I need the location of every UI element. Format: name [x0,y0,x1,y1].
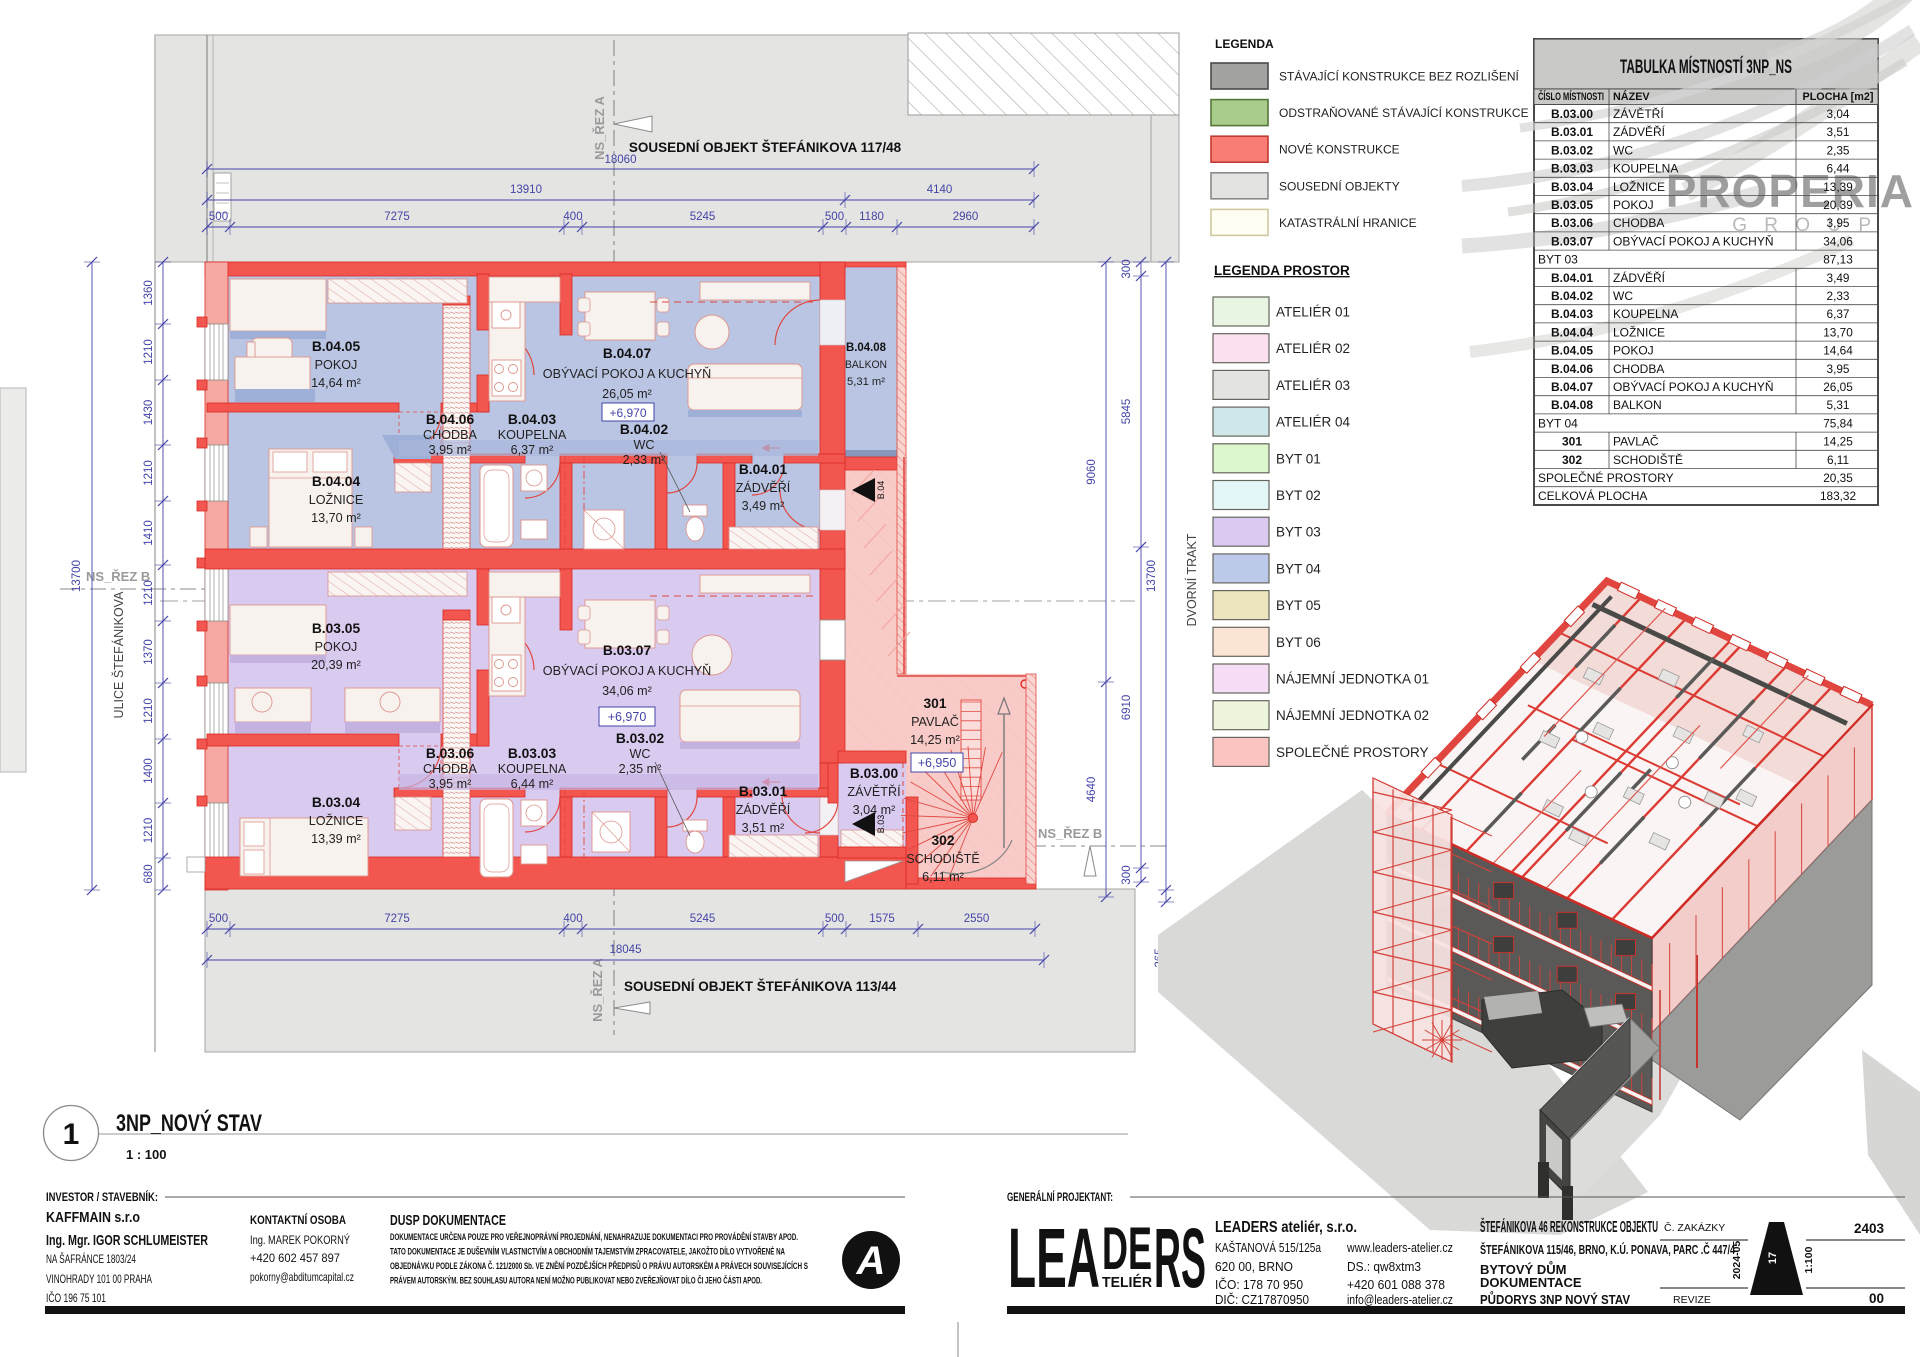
svg-text:KOUPELNA: KOUPELNA [1613,307,1678,321]
svg-text:BYT 03: BYT 03 [1276,525,1321,540]
svg-text:B.04.03: B.04.03 [508,412,557,427]
svg-text:34,06 m²: 34,06 m² [602,684,652,698]
svg-text:BYT 06: BYT 06 [1276,635,1321,650]
svg-text:B.04.02: B.04.02 [620,422,669,437]
svg-text:17: 17 [1767,1252,1779,1264]
svg-text:DOKUMENTACE URČENA POUZE PRO V: DOKUMENTACE URČENA POUZE PRO VEŘEJNOPRÁV… [390,1231,798,1242]
svg-text:5245: 5245 [690,913,716,925]
svg-text:B.04.04: B.04.04 [1551,325,1593,339]
svg-text:1: 1 [63,1118,80,1151]
svg-text:KOUPELNA: KOUPELNA [498,762,567,776]
svg-text:9060: 9060 [1086,459,1098,485]
svg-text:ZÁVĚTŘÍ: ZÁVĚTŘÍ [1613,106,1664,121]
svg-text:KAFFMAIN s.r.o: KAFFMAIN s.r.o [46,1209,140,1226]
svg-text:B.04.07: B.04.07 [603,346,652,361]
svg-text:302: 302 [931,833,954,848]
svg-text:LOŽNICE: LOŽNICE [309,813,364,828]
svg-text:2403: 2403 [1854,1221,1885,1236]
svg-text:REVIZE: REVIZE [1673,1294,1711,1306]
svg-text:KOUPELNA: KOUPELNA [498,428,567,442]
svg-text:CHODBA: CHODBA [1613,216,1664,230]
svg-text:OBJEDNÁVKU PODLE ZÁKONA Č. 121: OBJEDNÁVKU PODLE ZÁKONA Č. 121/2000 Sb. … [390,1260,808,1271]
svg-text:DS.: qw8xtm3: DS.: qw8xtm3 [1347,1260,1421,1274]
svg-text:2,35: 2,35 [1827,143,1850,157]
svg-text:1:100: 1:100 [1803,1246,1815,1273]
svg-text:STÁVAJÍCÍ KONSTRUKCE BEZ ROZLI: STÁVAJÍCÍ KONSTRUKCE BEZ ROZLIŠENÍ [1279,69,1519,84]
svg-text:1575: 1575 [869,913,895,925]
svg-text:SOUSEDNÍ OBJEKTY: SOUSEDNÍ OBJEKTY [1279,178,1400,193]
svg-text:301: 301 [923,696,946,711]
svg-text:3,95: 3,95 [1827,216,1850,230]
svg-text:ZÁDVĚŘÍ: ZÁDVĚŘÍ [1613,124,1666,139]
svg-text:pokorny@abditumcapital.cz: pokorny@abditumcapital.cz [250,1270,354,1284]
svg-text:ODSTRAŇOVANÉ STÁVAJÍCÍ KONSTRU: ODSTRAŇOVANÉ STÁVAJÍCÍ KONSTRUKCE [1279,105,1529,120]
svg-text:7275: 7275 [384,211,410,223]
svg-text:+6,970: +6,970 [609,406,646,420]
svg-text:NÁJEMNÍ JEDNOTKA 01: NÁJEMNÍ JEDNOTKA 01 [1276,672,1429,687]
svg-text:1210: 1210 [143,460,155,486]
svg-text:B.03.07: B.03.07 [1551,234,1593,248]
svg-text:B.03.00: B.03.00 [1551,107,1593,121]
svg-text:302: 302 [1562,453,1582,467]
svg-text:IČO 196 75 101: IČO 196 75 101 [46,1290,106,1305]
svg-text:2550: 2550 [964,913,990,925]
svg-text:3,04: 3,04 [1827,107,1850,121]
svg-text:3,95 m²: 3,95 m² [429,777,472,791]
svg-text:VINOHRADY 101 00 PRAHA: VINOHRADY 101 00 PRAHA [46,1272,152,1286]
svg-text:3NP_NOVÝ STAV: 3NP_NOVÝ STAV [116,1109,262,1137]
svg-text:301: 301 [1562,435,1582,449]
svg-text:BYT 03: BYT 03 [1538,253,1578,267]
svg-text:B.04.06: B.04.06 [1551,362,1593,376]
svg-text:87,13: 87,13 [1823,253,1853,267]
svg-text:B.03: B.03 [876,815,886,834]
svg-text:14,64: 14,64 [1823,344,1853,358]
svg-text:ZÁDVĚŘÍ: ZÁDVĚŘÍ [736,802,791,817]
svg-text:WC: WC [634,438,655,452]
svg-text:B.03.02: B.03.02 [1551,143,1593,157]
svg-text:2,33 m²: 2,33 m² [623,453,666,467]
svg-text:OBÝVACÍ POKOJ A KUCHYŇ: OBÝVACÍ POKOJ A KUCHYŇ [543,663,711,678]
svg-text:GENERÁLNÍ PROJEKTANT:: GENERÁLNÍ PROJEKTANT: [1007,1191,1113,1204]
svg-text:SOUSEDNÍ OBJEKT ŠTEFÁNIKOVA 11: SOUSEDNÍ OBJEKT ŠTEFÁNIKOVA 117/48 [629,140,902,155]
svg-text:POKOJ: POKOJ [1613,198,1654,212]
svg-text:KATASTRÁLNÍ HRANICE: KATASTRÁLNÍ HRANICE [1279,215,1417,230]
svg-text:3,51 m²: 3,51 m² [742,821,785,835]
svg-text:B.04.08: B.04.08 [846,340,886,354]
svg-text:B.03.04: B.03.04 [1551,180,1593,194]
svg-text:NS_ŘEZ A: NS_ŘEZ A [590,957,605,1021]
svg-text:1400: 1400 [143,758,155,784]
svg-text:PROPERIA: PROPERIA [1666,165,1914,217]
svg-text:NS_ŘEZ A: NS_ŘEZ A [592,95,607,159]
svg-text:INVESTOR / STAVEBNÍK:: INVESTOR / STAVEBNÍK: [46,1191,158,1204]
svg-text:SOUSEDNÍ OBJEKT ŠTEFÁNIKOVA 11: SOUSEDNÍ OBJEKT ŠTEFÁNIKOVA 113/44 [624,979,897,994]
svg-text:500: 500 [825,913,844,925]
svg-text:2024-05: 2024-05 [1731,1241,1743,1280]
svg-text:ZÁDVĚŘÍ: ZÁDVĚŘÍ [1613,270,1666,285]
svg-text:14,25: 14,25 [1823,435,1853,449]
svg-text:ATELIÉR 02: ATELIÉR 02 [1276,341,1350,356]
svg-text:B.04.05: B.04.05 [1551,344,1593,358]
svg-text:OBÝVACÍ POKOJ A KUCHYŇ: OBÝVACÍ POKOJ A KUCHYŇ [1613,233,1774,248]
svg-text:B.03.03: B.03.03 [1551,162,1593,176]
svg-text:B.04.01: B.04.01 [739,462,788,477]
svg-text:CHODBA: CHODBA [423,428,477,442]
svg-text:LEGENDA PROSTOR: LEGENDA PROSTOR [1214,263,1350,278]
svg-text:13910: 13910 [510,184,542,196]
svg-text:6910: 6910 [1121,695,1133,721]
svg-text:BYT 02: BYT 02 [1276,488,1321,503]
svg-text:CHODBA: CHODBA [423,762,477,776]
svg-text:2,35 m²: 2,35 m² [619,762,662,776]
svg-text:+420 601 088 378: +420 601 088 378 [1347,1278,1445,1292]
svg-text:1370: 1370 [143,639,155,665]
svg-text:NS_ŘEZ B: NS_ŘEZ B [1038,826,1102,841]
svg-text:300: 300 [1121,259,1133,278]
svg-text:www.leaders-atelier.cz: www.leaders-atelier.cz [1346,1241,1453,1255]
svg-text:20,39 m²: 20,39 m² [311,658,361,672]
svg-text:B.04.06: B.04.06 [426,412,475,427]
svg-text:PŮDORYS 3NP NOVÝ STAV: PŮDORYS 3NP NOVÝ STAV [1480,1291,1630,1307]
svg-text:1210: 1210 [143,580,155,606]
svg-text:B.04: B.04 [876,481,886,500]
svg-text:BALKON: BALKON [845,359,887,371]
svg-text:TABULKA MÍSTNOSTÍ 3NP_NS: TABULKA MÍSTNOSTÍ 3NP_NS [1620,56,1792,78]
svg-text:B.03.06: B.03.06 [1551,216,1593,230]
svg-text:B.03.00: B.03.00 [850,766,899,781]
svg-text:3,49 m²: 3,49 m² [742,499,785,513]
svg-text:TATO DOKUMENTACE JE DUŠEVNÍM V: TATO DOKUMENTACE JE DUŠEVNÍM VLASTNICTVÍ… [390,1246,785,1257]
svg-text:LOŽNICE: LOŽNICE [1613,324,1665,339]
svg-text:BYT 05: BYT 05 [1276,598,1321,613]
svg-text:75,84: 75,84 [1823,416,1853,430]
svg-text:3,95 m²: 3,95 m² [429,443,472,457]
svg-text:SCHODIŠTĚ: SCHODIŠTĚ [906,851,979,866]
svg-text:POKOJ: POKOJ [1613,344,1654,358]
svg-text:14,64 m²: 14,64 m² [311,376,361,390]
svg-text:SCHODIŠTĚ: SCHODIŠTĚ [1613,452,1683,467]
svg-text:6,44: 6,44 [1827,162,1850,176]
svg-text:NA ŠAFRÁNCE 1803/24: NA ŠAFRÁNCE 1803/24 [46,1251,136,1266]
svg-text:13,70 m²: 13,70 m² [311,511,361,525]
svg-text:B.04.02: B.04.02 [1551,289,1593,303]
svg-text:B.04.07: B.04.07 [1551,380,1593,394]
svg-text:KAŠTANOVÁ 515/125a: KAŠTANOVÁ 515/125a [1215,1240,1321,1255]
svg-text:DE: DE [1102,1215,1152,1282]
svg-text:Ing. Mgr. IGOR SCHLUMEISTER: Ing. Mgr. IGOR SCHLUMEISTER [46,1232,208,1249]
svg-text:6,37: 6,37 [1827,307,1850,321]
svg-text:5,31 m²: 5,31 m² [847,376,885,388]
svg-text:500: 500 [209,211,228,223]
svg-text:DUSP DOKUMENTACE: DUSP DOKUMENTACE [390,1212,506,1229]
svg-text:B.04.01: B.04.01 [1551,271,1593,285]
svg-text:1 : 100: 1 : 100 [126,1147,166,1162]
svg-text:B.03.05: B.03.05 [312,621,361,636]
svg-text:A: A [856,1239,886,1283]
svg-text:PAVLAČ: PAVLAČ [911,714,959,729]
svg-text:1410: 1410 [143,520,155,546]
svg-text:LOŽNICE: LOŽNICE [1613,179,1665,194]
svg-text:Č. ZAKÁZKY: Č. ZAKÁZKY [1664,1221,1725,1234]
svg-text:6,11 m²: 6,11 m² [922,870,964,884]
svg-text:3,95: 3,95 [1827,362,1850,376]
svg-text:5245: 5245 [690,211,716,223]
svg-text:PLOCHA [m2]: PLOCHA [m2] [1803,91,1874,103]
svg-text:500: 500 [209,913,228,925]
svg-text:1360: 1360 [143,280,155,306]
svg-text:KOUPELNA: KOUPELNA [1613,162,1678,176]
svg-text:Ing. MAREK POKORNÝ: Ing. MAREK POKORNÝ [250,1232,350,1247]
svg-text:B.04.08: B.04.08 [1551,398,1593,412]
svg-text:SPOLEČNÉ PROSTORY: SPOLEČNÉ PROSTORY [1276,745,1429,760]
svg-text:6,44 m²: 6,44 m² [511,777,554,791]
svg-text:BYT 04: BYT 04 [1276,561,1321,576]
svg-text:20,35: 20,35 [1823,471,1853,485]
svg-text:B.03.02: B.03.02 [616,731,665,746]
svg-text:ČÍSLO MÍSTNOSTI: ČÍSLO MÍSTNOSTI [1538,90,1604,103]
svg-text:ULICE ŠTEFÁNIKOVA: ULICE ŠTEFÁNIKOVA [111,591,126,719]
svg-text:NOVÉ KONSTRUKCE: NOVÉ KONSTRUKCE [1279,142,1400,157]
svg-text:680: 680 [143,864,155,883]
svg-text:26,05: 26,05 [1823,380,1853,394]
svg-text:400: 400 [563,211,582,223]
svg-text:13700: 13700 [1146,560,1158,592]
svg-text:CELKOVÁ PLOCHA: CELKOVÁ PLOCHA [1538,488,1647,503]
svg-text:+420 602 457 897: +420 602 457 897 [250,1251,340,1265]
svg-text:NS_ŘEZ B: NS_ŘEZ B [86,569,150,584]
svg-text:B.04.04: B.04.04 [312,474,361,489]
svg-text:POKOJ: POKOJ [315,640,358,654]
svg-text:ATELIÉR 03: ATELIÉR 03 [1276,378,1350,393]
svg-text:IČO: 178 70 950: IČO: 178 70 950 [1215,1277,1303,1292]
svg-text:B.03.06: B.03.06 [426,746,475,761]
svg-text:B.04.05: B.04.05 [312,339,361,354]
svg-text:BALKON: BALKON [1613,398,1662,412]
svg-text:BYT 01: BYT 01 [1276,451,1321,466]
svg-text:5845: 5845 [1121,399,1133,425]
svg-text:1210: 1210 [143,339,155,365]
svg-text:SPOLEČNÉ PROSTORY: SPOLEČNÉ PROSTORY [1538,470,1674,485]
svg-text:ŠTEFÁNIKOVA 115/46, BRNO, K.Ú.: ŠTEFÁNIKOVA 115/46, BRNO, K.Ú. PONAVA, P… [1480,1242,1736,1257]
svg-text:6,11: 6,11 [1827,453,1849,467]
svg-text:13,70: 13,70 [1823,325,1853,339]
svg-text:+6,950: +6,950 [918,756,957,770]
svg-text:2,33: 2,33 [1827,289,1850,303]
svg-text:13,39: 13,39 [1823,180,1853,194]
svg-text:LEGENDA: LEGENDA [1215,37,1274,51]
svg-text:OBÝVACÍ POKOJ A KUCHYŇ: OBÝVACÍ POKOJ A KUCHYŇ [543,366,711,381]
svg-text:OBÝVACÍ POKOJ A KUCHYŇ: OBÝVACÍ POKOJ A KUCHYŇ [1613,379,1774,394]
svg-text:LEADERS ateliér, s.r.o.: LEADERS ateliér, s.r.o. [1215,1219,1357,1236]
svg-text:PRÁVEM AUTORSKÝM. BEZ SOUHLASU: PRÁVEM AUTORSKÝM. BEZ SOUHLASU AUTORA NE… [390,1275,762,1286]
svg-text:00: 00 [1869,1291,1884,1306]
svg-text:B.04.03: B.04.03 [1551,307,1593,321]
svg-text:LEA: LEA [1008,1211,1100,1305]
svg-text:PAVLAČ: PAVLAČ [1613,434,1659,449]
svg-text:+6,970: +6,970 [608,710,647,724]
svg-text:ATELIÉR 04: ATELIÉR 04 [1276,415,1351,430]
svg-text:34,06: 34,06 [1823,234,1853,248]
svg-text:LOŽNICE: LOŽNICE [309,492,364,507]
svg-text:20,39: 20,39 [1823,198,1853,212]
svg-text:500: 500 [825,211,844,223]
svg-text:18060: 18060 [605,154,637,166]
svg-text:B.03.05: B.03.05 [1551,198,1593,212]
svg-text:3,51: 3,51 [1827,125,1850,139]
svg-text:WC: WC [1613,143,1633,157]
svg-text:2960: 2960 [953,211,979,223]
svg-text:4140: 4140 [927,184,953,196]
svg-text:183,32: 183,32 [1820,489,1856,503]
svg-text:1430: 1430 [143,400,155,426]
svg-text:ZÁDVĚŘÍ: ZÁDVĚŘÍ [736,480,791,495]
svg-text:NÁJEMNÍ JEDNOTKA 02: NÁJEMNÍ JEDNOTKA 02 [1276,708,1429,723]
svg-text:1180: 1180 [859,211,884,223]
svg-text:300: 300 [1121,865,1133,884]
svg-text:ATELIÉR 01: ATELIÉR 01 [1276,305,1350,320]
svg-text:1210: 1210 [143,698,155,724]
svg-text:14,25 m²: 14,25 m² [910,733,960,747]
svg-text:WC: WC [630,747,651,761]
svg-text:DIČ: CZ17870950: DIČ: CZ17870950 [1215,1292,1309,1307]
svg-text:26,05 m²: 26,05 m² [602,387,652,401]
svg-text:DVORNÍ TRAKT: DVORNÍ TRAKT [1184,533,1199,626]
svg-text:18045: 18045 [610,944,642,956]
svg-text:B.03.04: B.03.04 [312,795,361,810]
svg-text:info@leaders-atelier.cz: info@leaders-atelier.cz [1347,1293,1453,1307]
svg-text:13,39 m²: 13,39 m² [311,832,361,846]
svg-text:RS: RS [1154,1211,1206,1305]
svg-text:7275: 7275 [384,913,410,925]
svg-text:ZÁVĚTŘÍ: ZÁVĚTŘÍ [847,784,901,799]
svg-text:ŠTEFÁNIKOVA 46 REKONSTRUKCE OB: ŠTEFÁNIKOVA 46 REKONSTRUKCE OBJEKTU [1480,1217,1658,1236]
svg-text:6,37 m²: 6,37 m² [511,443,554,457]
svg-text:NÁZEV: NÁZEV [1613,90,1650,103]
svg-text:B.03.01: B.03.01 [739,784,788,799]
svg-text:KONTAKTNÍ OSOBA: KONTAKTNÍ OSOBA [250,1212,346,1227]
svg-text:4640: 4640 [1086,777,1098,803]
svg-text:B.03.07: B.03.07 [603,643,652,658]
svg-text:TELIÉR: TELIÉR [1102,1274,1152,1291]
svg-text:POKOJ: POKOJ [315,358,358,372]
svg-text:5,31: 5,31 [1827,398,1850,412]
svg-text:B.03.03: B.03.03 [508,746,557,761]
svg-text:3,49: 3,49 [1827,271,1850,285]
svg-text:CHODBA: CHODBA [1613,362,1664,376]
svg-text:G R O U P: G R O U P [1732,215,1877,236]
svg-text:B.03.01: B.03.01 [1551,125,1593,139]
svg-text:WC: WC [1613,289,1633,303]
svg-text:DOKUMENTACE: DOKUMENTACE [1480,1275,1582,1290]
svg-text:BYT 04: BYT 04 [1538,416,1578,430]
svg-text:13700: 13700 [71,560,83,592]
svg-text:400: 400 [563,913,582,925]
svg-text:1210: 1210 [143,818,155,844]
svg-text:620 00, BRNO: 620 00, BRNO [1215,1260,1293,1274]
